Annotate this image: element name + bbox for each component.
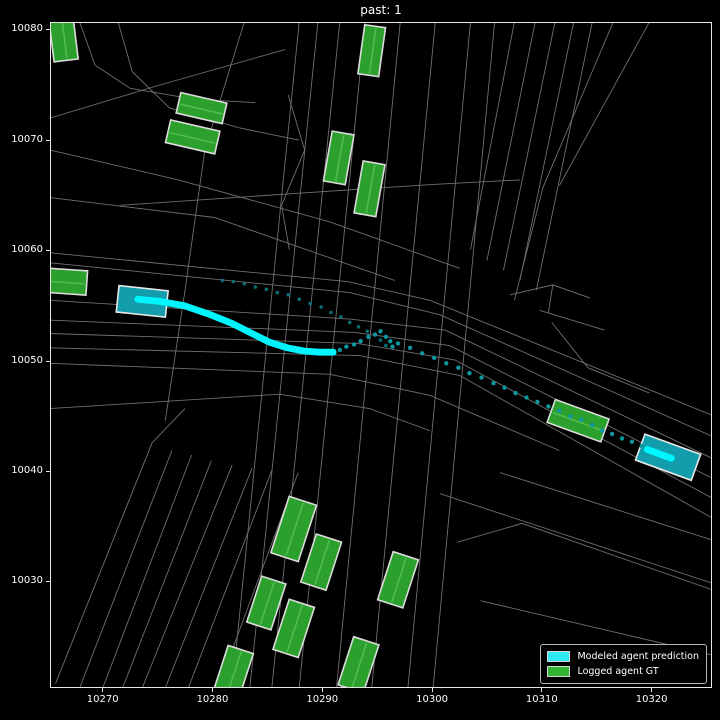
prediction-dots-main-dot — [568, 414, 572, 418]
prediction-dots-main-dot — [502, 385, 506, 389]
gt-box-rect — [273, 599, 314, 657]
y-tick-label: 10060 — [0, 244, 43, 255]
past-dotted-trajectory-dot — [232, 280, 236, 284]
past-dotted-trajectory-dot — [379, 338, 383, 342]
prediction-dots-main-dot — [444, 361, 448, 365]
y-tick — [46, 361, 50, 362]
prediction-dots-mid-dot — [366, 335, 370, 339]
prediction-dots-mid-dot — [388, 339, 392, 343]
road-line — [408, 22, 471, 688]
x-tick — [102, 688, 103, 692]
road-line — [503, 22, 555, 271]
gt-box-rect — [358, 25, 386, 77]
prediction-dots-main-dot — [491, 381, 495, 385]
road-line — [50, 394, 430, 431]
gt-box — [213, 645, 253, 688]
gt-box-rect — [247, 576, 286, 630]
legend-item: Logged agent GT — [547, 664, 699, 679]
road-line — [80, 22, 256, 103]
road-line — [120, 180, 520, 205]
legend: Modeled agent predictionLogged agent GT — [540, 644, 707, 684]
gt-box-rect — [165, 120, 219, 154]
road-line — [540, 310, 605, 330]
road-line — [552, 322, 650, 393]
x-tick — [322, 688, 323, 692]
legend-item: Modeled agent prediction — [547, 649, 699, 664]
gt-box-rect — [176, 93, 227, 124]
gt-box-rect — [354, 161, 385, 217]
gt-box — [301, 534, 342, 590]
gt-box — [50, 22, 78, 62]
prediction-dots-main-dot — [557, 409, 561, 413]
road-line — [536, 22, 592, 290]
road-line — [50, 253, 712, 415]
past-dotted-trajectory-dot — [357, 325, 361, 329]
road-line — [440, 494, 712, 583]
gt-box — [271, 496, 317, 561]
plot-area — [50, 22, 712, 688]
prediction-dots-mid-dot — [378, 329, 382, 333]
past-dotted-trajectory-dot — [297, 297, 301, 301]
gt-box — [50, 268, 88, 295]
prediction-dots-mid-dot — [359, 339, 363, 343]
gt-box — [358, 25, 386, 77]
road-line — [559, 22, 649, 186]
past-dotted-trajectory-dot — [366, 330, 370, 334]
past-dotted-trajectory-dot — [339, 315, 343, 319]
prediction-dots-main-dot — [420, 351, 424, 355]
road-line — [282, 95, 305, 250]
past-dotted-trajectory-dot — [221, 279, 225, 283]
gt-box-rect — [213, 645, 253, 688]
road-line — [510, 285, 590, 298]
y-tick-label: 10080 — [0, 23, 43, 34]
past-dotted-trajectory-dot — [319, 305, 323, 309]
y-tick-label: 10050 — [0, 355, 43, 366]
road-line — [471, 22, 515, 250]
prediction-dots-main-dot — [456, 366, 460, 370]
x-tick — [651, 688, 652, 692]
y-tick — [46, 140, 50, 141]
x-tick-label: 10270 — [75, 694, 131, 705]
gt-box-rect — [547, 400, 609, 442]
past-dotted-trajectory-dot — [329, 311, 333, 315]
legend-swatch — [547, 666, 570, 677]
gt-box — [247, 576, 286, 630]
prediction-dots-main-dot — [610, 432, 614, 436]
prediction-dots-mid-dot — [384, 335, 388, 339]
legend-item-label: Logged agent GT — [577, 666, 658, 677]
prediction-dots-mid-dot — [352, 342, 356, 346]
x-tick-label: 10290 — [294, 694, 350, 705]
prediction-dots-main-dot — [620, 436, 624, 440]
y-tick-label: 10070 — [0, 134, 43, 145]
y-tick — [46, 29, 50, 30]
prediction-dots-main-dot — [630, 440, 634, 444]
road-line — [80, 451, 172, 689]
prediction-dots-main-dot — [640, 444, 644, 448]
road-line — [433, 22, 495, 688]
y-tick-label: 10040 — [0, 465, 43, 476]
gt-box — [354, 161, 385, 217]
x-tick-label: 10300 — [404, 694, 460, 705]
prediction-dots-main-dot — [524, 395, 528, 399]
prediction-dots-mid-dot — [338, 348, 342, 352]
prediction-dots-main-dot — [408, 346, 412, 350]
road-line — [50, 50, 285, 119]
prediction-dots-main-dot — [579, 417, 583, 421]
gt-box — [165, 120, 219, 154]
gt-box — [176, 93, 227, 124]
past-dotted-trajectory-dot — [276, 291, 280, 295]
road-line — [123, 461, 212, 689]
x-tick — [541, 688, 542, 692]
prediction-dots-mid-dot — [390, 345, 394, 349]
prediction-dots-main-dot — [396, 341, 400, 345]
gt-box-rect — [301, 534, 342, 590]
road-line — [50, 320, 712, 478]
road-line — [50, 334, 712, 499]
gt-box-rect — [271, 496, 317, 561]
past-dotted-trajectory-dot — [265, 288, 269, 292]
gt-box — [547, 400, 609, 442]
past-dotted-trajectory-dot — [384, 344, 388, 348]
x-tick-label: 10320 — [624, 694, 680, 705]
prediction-dots-mid-dot — [344, 345, 348, 349]
legend-swatch — [547, 651, 570, 662]
y-tick — [46, 471, 50, 472]
y-tick — [46, 250, 50, 251]
past-dotted-trajectory-dot — [243, 282, 247, 286]
prediction-dots-main-dot — [432, 356, 436, 360]
prediction-dots-main-dot — [590, 423, 594, 427]
road-line — [118, 22, 299, 140]
past-dotted-trajectory-dot — [348, 321, 352, 325]
plot-title: past: 1 — [50, 3, 712, 17]
road-line — [487, 22, 535, 261]
past-dotted-trajectory-dot — [308, 302, 312, 306]
x-tick-label: 10280 — [184, 694, 240, 705]
road-line — [548, 285, 552, 313]
figure: past: 1 10270102801029010300103101032010… — [0, 0, 720, 720]
past-dotted-trajectory-dot — [286, 293, 290, 297]
road-line — [50, 150, 460, 268]
past-dotted-trajectory-dot — [254, 285, 258, 289]
prediction-dots-main-dot — [546, 404, 550, 408]
road-line — [103, 455, 192, 688]
prediction-dots-main-dot — [600, 429, 604, 433]
road-line — [457, 523, 712, 589]
prediction-dots-main-dot — [479, 375, 483, 379]
y-tick — [46, 581, 50, 582]
legend-item-label: Modeled agent prediction — [577, 651, 699, 662]
prediction-dots-main-dot — [535, 400, 539, 404]
prediction-dots-main-dot — [513, 391, 517, 395]
gt-box — [273, 599, 314, 657]
prediction-dots-main-dot — [467, 371, 471, 375]
prediction-dots-mid-dot — [373, 332, 377, 336]
y-tick-label: 10030 — [0, 575, 43, 586]
x-tick — [212, 688, 213, 692]
x-tick-label: 10310 — [514, 694, 570, 705]
road-line — [500, 473, 712, 540]
x-tick — [432, 688, 433, 692]
road-line — [514, 22, 613, 300]
road-line — [165, 22, 244, 421]
road-line — [142, 465, 232, 688]
